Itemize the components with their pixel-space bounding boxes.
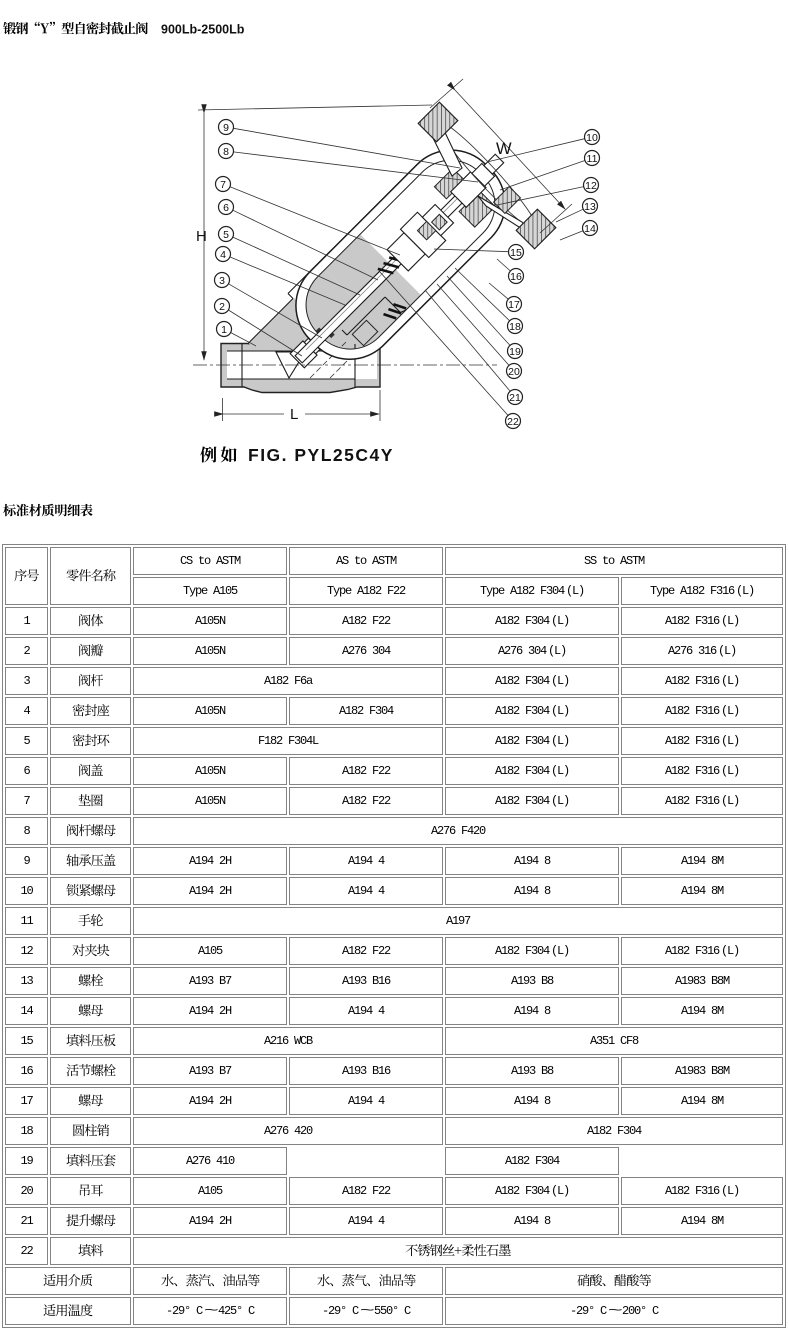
svg-text:16: 16: [510, 271, 522, 283]
svg-text:2: 2: [219, 301, 225, 313]
svg-text:10: 10: [586, 132, 598, 144]
svg-text:18: 18: [509, 321, 521, 333]
svg-text:15: 15: [510, 247, 522, 259]
svg-text:13: 13: [584, 201, 596, 213]
svg-text:5: 5: [223, 229, 229, 241]
svg-text:3: 3: [219, 275, 225, 287]
svg-text:22: 22: [507, 416, 519, 428]
svg-text:17: 17: [508, 299, 520, 311]
svg-text:4: 4: [220, 249, 226, 261]
svg-text:12: 12: [585, 180, 597, 192]
svg-text:20: 20: [508, 366, 520, 378]
svg-text:6: 6: [223, 202, 229, 214]
svg-text:19: 19: [509, 346, 521, 358]
svg-text:L: L: [290, 406, 298, 423]
svg-text:H: H: [196, 228, 207, 245]
svg-text:W: W: [496, 140, 512, 158]
svg-text:1: 1: [221, 324, 227, 336]
svg-text:7: 7: [220, 179, 226, 191]
svg-text:FIG. PYL25C4Y: FIG. PYL25C4Y: [248, 445, 394, 465]
svg-text:14: 14: [584, 223, 596, 235]
svg-text:11: 11: [587, 153, 598, 165]
svg-text:21: 21: [509, 392, 521, 404]
svg-text:9: 9: [223, 122, 229, 134]
svg-text:8: 8: [223, 146, 229, 158]
